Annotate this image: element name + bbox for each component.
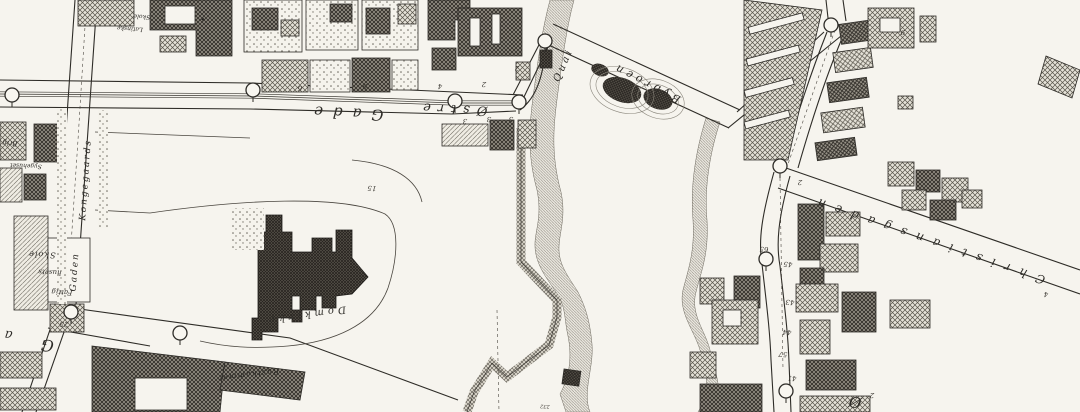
- parcel-number: 4: [1043, 290, 1049, 298]
- well-marker: [759, 252, 773, 266]
- historical-map-canvas: ✦ GadeØstreBybroenQuaiChristiansgadenKon…: [0, 0, 1080, 412]
- building-block: [352, 58, 390, 92]
- building-block: [24, 174, 46, 200]
- building-block: [888, 162, 914, 186]
- well-marker: [64, 305, 78, 319]
- parcel-number: 65: [759, 245, 769, 253]
- parcel-number: 41: [787, 374, 797, 383]
- parcel-number: 2: [869, 391, 875, 399]
- building-block: [902, 190, 926, 210]
- parcel-number: 25: [59, 320, 70, 329]
- garden-plot: [392, 60, 418, 90]
- building-block: [723, 310, 741, 326]
- parcel-number: 2: [797, 178, 803, 186]
- building-block: [820, 244, 858, 272]
- building-block: [0, 352, 42, 378]
- well-marker: [5, 88, 19, 102]
- well-marker: [173, 326, 187, 340]
- building-block: [700, 384, 762, 412]
- building-block: [78, 0, 134, 26]
- map-svg: ✦ GadeØstreBybroenQuaiChristiansgadenKon…: [0, 0, 1080, 412]
- building-block: [398, 4, 416, 24]
- parcel-number: 44: [782, 328, 792, 337]
- well-marker: [773, 159, 787, 173]
- well-marker: [538, 34, 552, 48]
- parcel-number: 2: [514, 64, 520, 72]
- building-block: [165, 6, 195, 24]
- building-block: [281, 20, 299, 36]
- well-marker: [246, 83, 260, 97]
- building-block: [880, 18, 900, 32]
- building-block: [135, 378, 187, 410]
- building-block: [800, 320, 830, 354]
- building-block: [160, 36, 186, 52]
- parcel-number: 45: [783, 260, 794, 269]
- building-block: [366, 8, 390, 34]
- map-label-big-letter-G: G: [40, 335, 55, 355]
- garden-plot: [310, 60, 350, 92]
- map-label-edge-fragment: Brig: [2, 139, 19, 148]
- building-block: [490, 120, 514, 150]
- well-marker: [512, 95, 526, 109]
- building-block: [442, 124, 488, 146]
- building-block: [492, 14, 500, 44]
- building-block: [0, 168, 22, 202]
- star-mark: ✦: [200, 16, 206, 24]
- building-block: [806, 360, 856, 390]
- parcel-number: 15: [367, 184, 377, 192]
- map-label-skole-2: husets: [38, 267, 62, 276]
- building-block: [930, 200, 956, 220]
- building-block: [796, 284, 838, 312]
- map-label-skole: Skole: [28, 249, 56, 259]
- parcel-number: 4: [437, 82, 443, 90]
- well-marker: [824, 18, 838, 32]
- parcel-number: 232: [540, 403, 551, 410]
- building-block: [14, 216, 48, 310]
- building-block: [920, 16, 936, 42]
- building-block: [330, 4, 352, 22]
- building-block: [562, 369, 581, 386]
- parcel-number: 57: [778, 350, 788, 358]
- building-block: [518, 120, 536, 148]
- map-label-skole-3: Fattig: [51, 287, 74, 296]
- building-block: [458, 8, 522, 56]
- building-block: [890, 300, 930, 328]
- building-block: [432, 48, 456, 70]
- building-block: [690, 352, 716, 378]
- map-label-latin-school-1: Skole: [133, 12, 151, 20]
- building-block: [0, 388, 56, 410]
- building-block: [540, 50, 552, 68]
- parcel-number: 43: [785, 298, 796, 307]
- building-block: [916, 170, 940, 192]
- building-block: [842, 292, 876, 332]
- building-block: [470, 18, 480, 46]
- well-marker: [779, 384, 793, 398]
- parcel-number: 2: [481, 80, 487, 88]
- building-block: [252, 8, 278, 30]
- building-block: [898, 96, 913, 109]
- building-block: [962, 190, 982, 208]
